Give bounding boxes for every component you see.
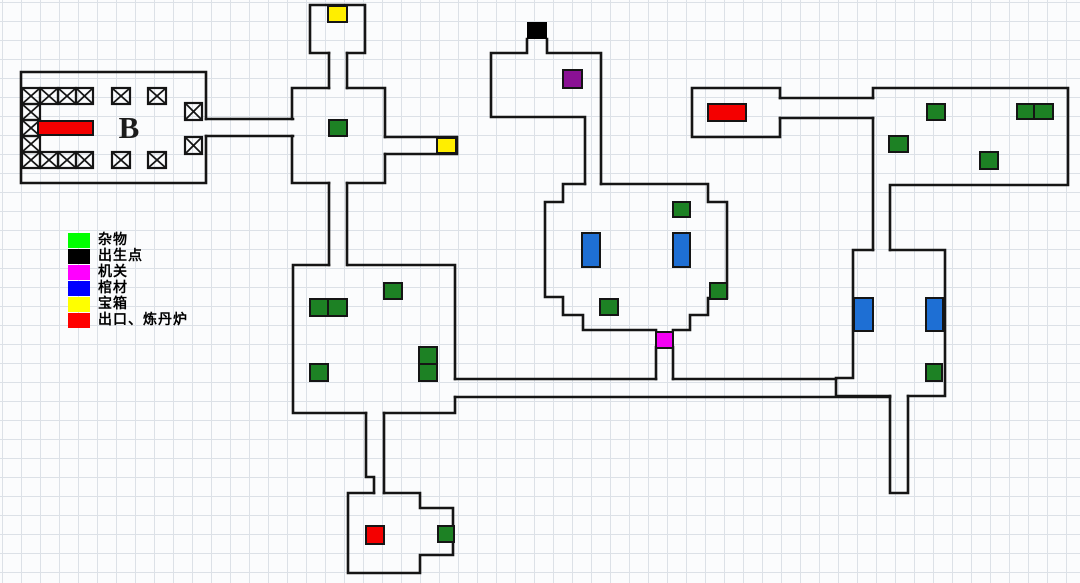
map-item-junk <box>1017 104 1034 119</box>
map-item-exit <box>708 104 746 121</box>
map-item-junk <box>600 299 618 315</box>
hallway-long <box>455 379 890 397</box>
map-item-junk <box>438 526 454 542</box>
cross-box <box>112 88 130 104</box>
cross-box <box>58 152 76 168</box>
room-b-label: B <box>112 110 146 146</box>
corridor-dead-end-south <box>890 396 908 493</box>
map-item-coffin <box>926 298 943 331</box>
map-item-junk <box>310 299 328 316</box>
corridor-furnace-east <box>780 98 873 118</box>
map-item-junk <box>673 202 690 217</box>
map-item-spawn <box>527 22 547 39</box>
map-item-coffin <box>854 298 873 331</box>
map-item-coffin <box>673 233 690 267</box>
legend-row-exit: 出口、炼丹炉 <box>68 312 188 328</box>
legend-swatch-mechanism <box>68 265 90 280</box>
corridor-top-small-down <box>329 53 347 88</box>
legend-label-spawn: 出生点 <box>98 249 143 263</box>
map-item-junk <box>310 364 328 381</box>
legend-swatch-spawn <box>68 249 90 264</box>
room-spawn-outline <box>491 39 601 184</box>
corridor-b-east <box>206 119 293 136</box>
legend-label-junk: 杂物 <box>98 233 128 247</box>
map-item-junk <box>419 347 437 364</box>
room-coffin-hall-outline <box>545 184 727 330</box>
cross-box <box>76 88 93 104</box>
map-item-chest <box>437 138 456 153</box>
map-item-exit <box>38 121 93 135</box>
cross-box <box>185 137 202 154</box>
legend-label-mechanism: 机关 <box>98 265 128 279</box>
map-item-junk <box>419 364 437 381</box>
cross-box <box>40 152 58 168</box>
map-item-junk <box>328 299 347 316</box>
map-item-junk <box>329 120 347 136</box>
map-item-junk <box>710 283 727 299</box>
cross-box <box>148 88 166 104</box>
cross-box <box>58 88 76 104</box>
map-item-junk <box>980 152 998 169</box>
room-bottom-middle-outline <box>293 265 455 413</box>
map-item-mechanism-dark <box>563 70 582 88</box>
legend-row-mechanism: 机关 <box>68 264 188 280</box>
legend-swatch-junk <box>68 233 90 248</box>
legend-swatch-chest <box>68 297 90 312</box>
legend-row-junk: 杂物 <box>68 232 188 248</box>
legend-label-chest: 宝箱 <box>98 297 128 311</box>
corridor-mechanism-down <box>656 347 673 379</box>
legend-swatch-exit <box>68 313 90 328</box>
cross-box <box>148 152 166 168</box>
cross-box <box>22 152 40 168</box>
legend-row-coffin: 棺材 <box>68 280 188 296</box>
map-item-junk <box>889 136 908 152</box>
map-item-chest <box>328 6 347 22</box>
map-item-coffin <box>582 233 600 267</box>
map-item-junk <box>927 104 945 120</box>
legend-row-chest: 宝箱 <box>68 296 188 312</box>
map-item-exit <box>366 526 384 544</box>
map-item-mechanism <box>656 332 673 348</box>
cross-box <box>185 103 202 120</box>
cross-box <box>22 136 40 152</box>
cross-box <box>22 88 40 104</box>
dungeon-map-canvas: B 杂物出生点机关棺材宝箱出口、炼丹炉 <box>0 0 1080 583</box>
cross-box <box>22 104 40 120</box>
map-item-junk <box>926 364 942 381</box>
cross-box <box>40 88 58 104</box>
legend-swatch-coffin <box>68 281 90 296</box>
legend-label-coffin: 棺材 <box>98 281 128 295</box>
corridor-bottom-down <box>366 413 384 493</box>
corridor-middle-down <box>329 183 347 265</box>
map-item-junk <box>384 283 402 299</box>
map-item-junk <box>1034 104 1053 119</box>
legend-label-exit: 出口、炼丹炉 <box>98 313 188 327</box>
cross-box <box>76 152 93 168</box>
legend-row-spawn: 出生点 <box>68 248 188 264</box>
cross-box <box>112 152 130 168</box>
legend: 杂物出生点机关棺材宝箱出口、炼丹炉 <box>68 232 188 328</box>
